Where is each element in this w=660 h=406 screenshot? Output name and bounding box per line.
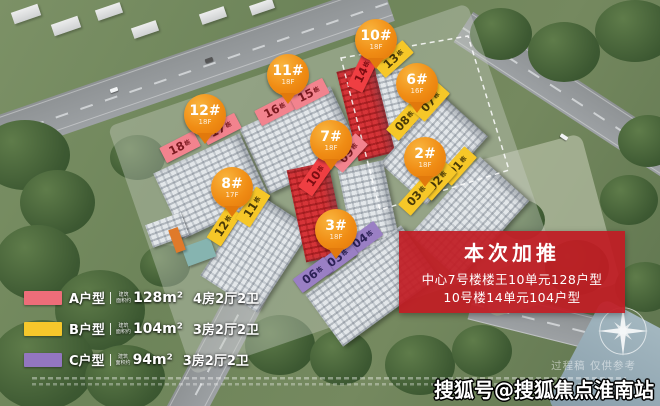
legend-color-swatch <box>24 322 62 336</box>
pin-floor-count: 18F <box>419 162 432 169</box>
legend-divider <box>110 323 111 335</box>
pin-building-number: 2# <box>414 147 435 162</box>
legend-area-value: 128m² <box>133 290 183 306</box>
building-pin: 11# 18F <box>267 54 309 96</box>
pin-floor-count: 18F <box>282 79 295 86</box>
pin-building-number: 10# <box>360 29 391 44</box>
sohu-watermark: 搜狐号@搜狐焦点淮南站 <box>434 374 654 403</box>
legend-room-layout: 3房2厅2卫 <box>193 319 259 338</box>
building-pin: 10# 18F <box>355 19 397 61</box>
promo-title: 本次加推 <box>464 237 560 266</box>
building-pin: 12# 18F <box>184 94 226 136</box>
pin-floor-count: 17F <box>226 192 239 199</box>
legend-area-note: 建筑面积约 <box>116 323 131 335</box>
pin-floor-count: 16F <box>411 88 424 95</box>
legend-color-swatch <box>24 353 62 367</box>
pin-floor-count: 18F <box>325 145 338 152</box>
pin-building-number: 7# <box>320 130 341 145</box>
pin-floor-count: 18F <box>370 44 383 51</box>
promo-line-1: 中心7号楼楼王10单元128户型 <box>422 271 603 289</box>
legend-divider <box>110 354 111 366</box>
pin-building-number: 6# <box>406 73 427 88</box>
legend-area-value: 94m² <box>133 352 173 368</box>
legend-area-note: 建筑面积约 <box>116 292 131 304</box>
legend-area-note: 建筑面积约 <box>116 354 131 366</box>
pin-floor-count: 18F <box>330 234 343 241</box>
building-pin: 6# 16F <box>396 63 438 105</box>
legend-area-value: 104m² <box>133 321 183 337</box>
building-pin: 8# 17F <box>211 167 253 209</box>
site-plan-image: 18 栋 17 栋 16 栋 15 栋 14 栋 13 栋 12 栋 11 栋 … <box>0 0 660 406</box>
pin-building-number: 8# <box>221 177 242 192</box>
legend-unit-type: C户型 <box>69 350 105 369</box>
building-pin: 3# 18F <box>315 209 357 251</box>
legend-divider <box>110 292 111 304</box>
legend-unit-type: B户型 <box>69 319 105 338</box>
pin-floor-count: 18F <box>199 119 212 126</box>
legend-row: A户型 建筑面积约 128m² 4房2厅2卫 <box>24 288 259 307</box>
promo-box: 本次加推 中心7号楼楼王10单元128户型 10号楼14单元104户型 <box>399 231 625 313</box>
draft-watermark: 过程稿 仅供参考 <box>551 358 636 373</box>
legend-unit-type: A户型 <box>69 288 105 307</box>
pin-building-number: 11# <box>272 64 303 79</box>
legend-color-swatch <box>24 291 62 305</box>
pin-building-number: 12# <box>189 104 220 119</box>
pin-building-number: 3# <box>325 219 346 234</box>
unit-type-legend: A户型 建筑面积约 128m² 4房2厅2卫 B户型 建筑面积约 104m² 3… <box>24 288 259 381</box>
building-pin: 7# 18F <box>310 120 352 162</box>
legend-room-layout: 4房2厅2卫 <box>193 288 259 307</box>
legend-row: B户型 建筑面积约 104m² 3房2厅2卫 <box>24 319 259 338</box>
legend-room-layout: 3房2厅2卫 <box>183 350 249 369</box>
promo-line-2: 10号楼14单元104户型 <box>443 289 580 307</box>
building-pin: 2# 18F <box>404 137 446 179</box>
legend-row: C户型 建筑面积约 94m² 3房2厅2卫 <box>24 350 259 369</box>
